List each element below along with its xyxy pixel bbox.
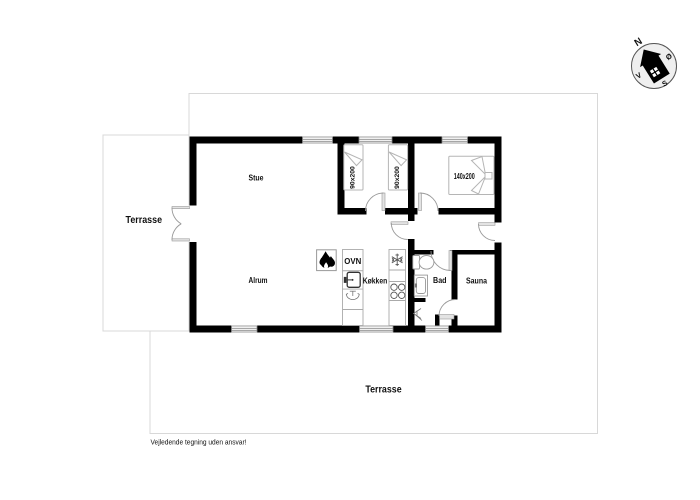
svg-text:Terrasse: Terrasse — [365, 384, 402, 395]
svg-text:90x200: 90x200 — [349, 166, 356, 189]
svg-text:Terrasse: Terrasse — [126, 215, 163, 226]
svg-text:Alrum: Alrum — [249, 275, 268, 285]
svg-text:140x200: 140x200 — [454, 172, 475, 181]
svg-text:90x200: 90x200 — [394, 166, 401, 189]
svg-text:Køkken: Køkken — [363, 275, 387, 285]
svg-text:Stue: Stue — [249, 173, 264, 183]
svg-text:OVN: OVN — [344, 256, 361, 266]
svg-text:Sauna: Sauna — [466, 275, 487, 285]
svg-text:Vejledende tegning uden ansvar: Vejledende tegning uden ansvar! — [151, 437, 247, 446]
svg-text:Bad: Bad — [433, 275, 447, 285]
